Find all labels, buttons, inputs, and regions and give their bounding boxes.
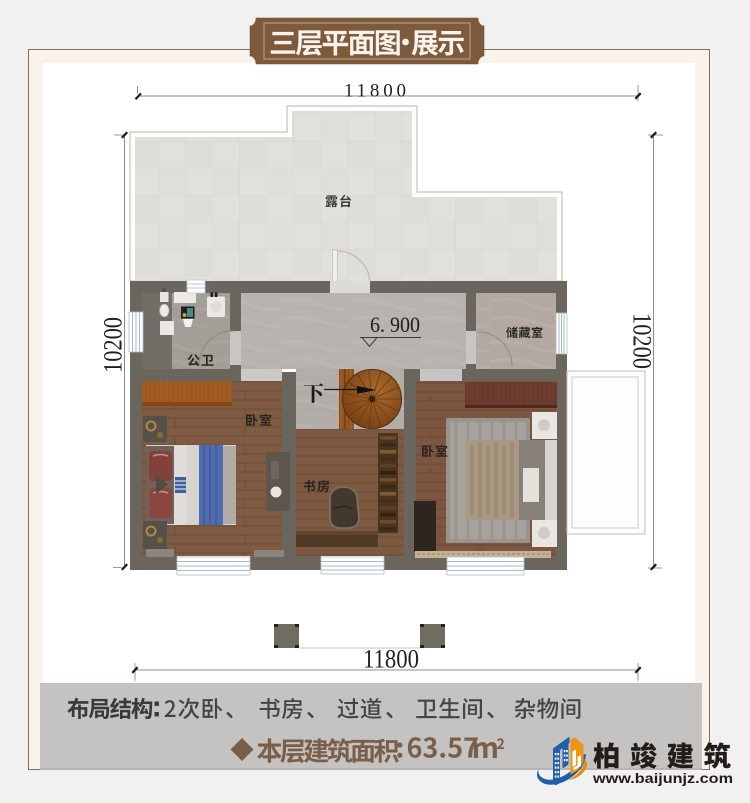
svg-text:10200: 10200 xyxy=(99,317,128,373)
svg-text:6. 900: 6. 900 xyxy=(370,312,420,337)
svg-text:www.baijunjz.com: www.baijunjz.com xyxy=(592,770,733,786)
svg-text:11800: 11800 xyxy=(363,645,419,674)
svg-text:10200: 10200 xyxy=(628,313,657,369)
